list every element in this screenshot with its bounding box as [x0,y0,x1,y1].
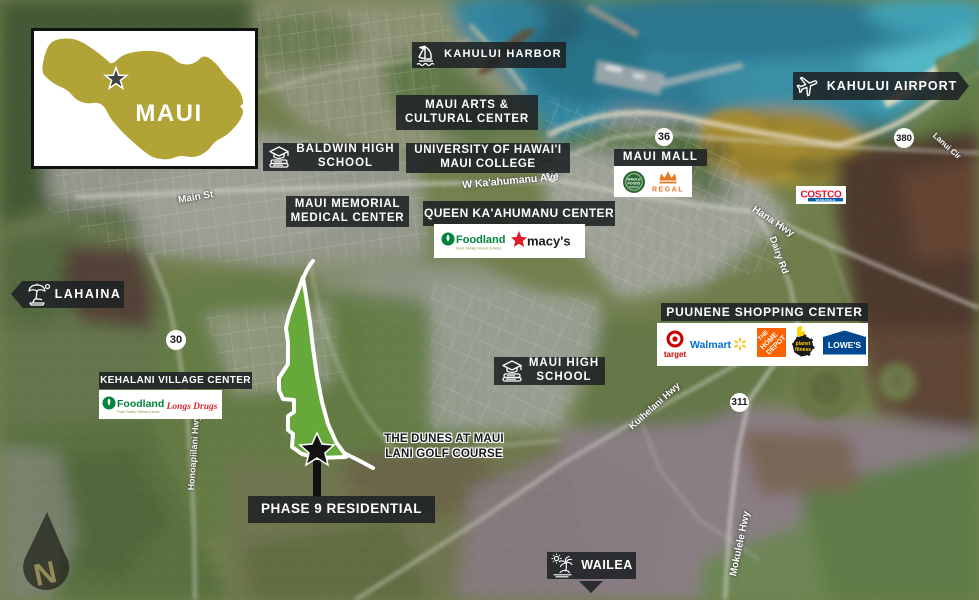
svg-text:target: target [664,350,687,359]
svg-text:fitness: fitness [795,347,811,353]
svg-text:Longs Drugs: Longs Drugs [165,402,217,412]
svg-text:Foodland: Foodland [117,398,164,410]
svg-text:MARKET: MARKET [629,186,640,189]
svg-text:WHOLESALE: WHOLESALE [816,198,836,202]
svg-text:macy's: macy's [527,234,571,249]
svg-text:Food, Family, Friends & Aloha: Food, Family, Friends & Aloha [456,247,501,251]
svg-text:LOWE'S: LOWE'S [828,340,862,350]
svg-text:REGAL: REGAL [652,187,684,194]
svg-text:FOODS: FOODS [627,181,640,185]
svg-text:Food, Family, Friends & Aloha: Food, Family, Friends & Aloha [117,410,160,414]
svg-text:Walmart: Walmart [690,339,732,351]
svg-text:Foodland: Foodland [456,234,505,246]
svg-text:MAUI: MAUI [135,100,202,127]
